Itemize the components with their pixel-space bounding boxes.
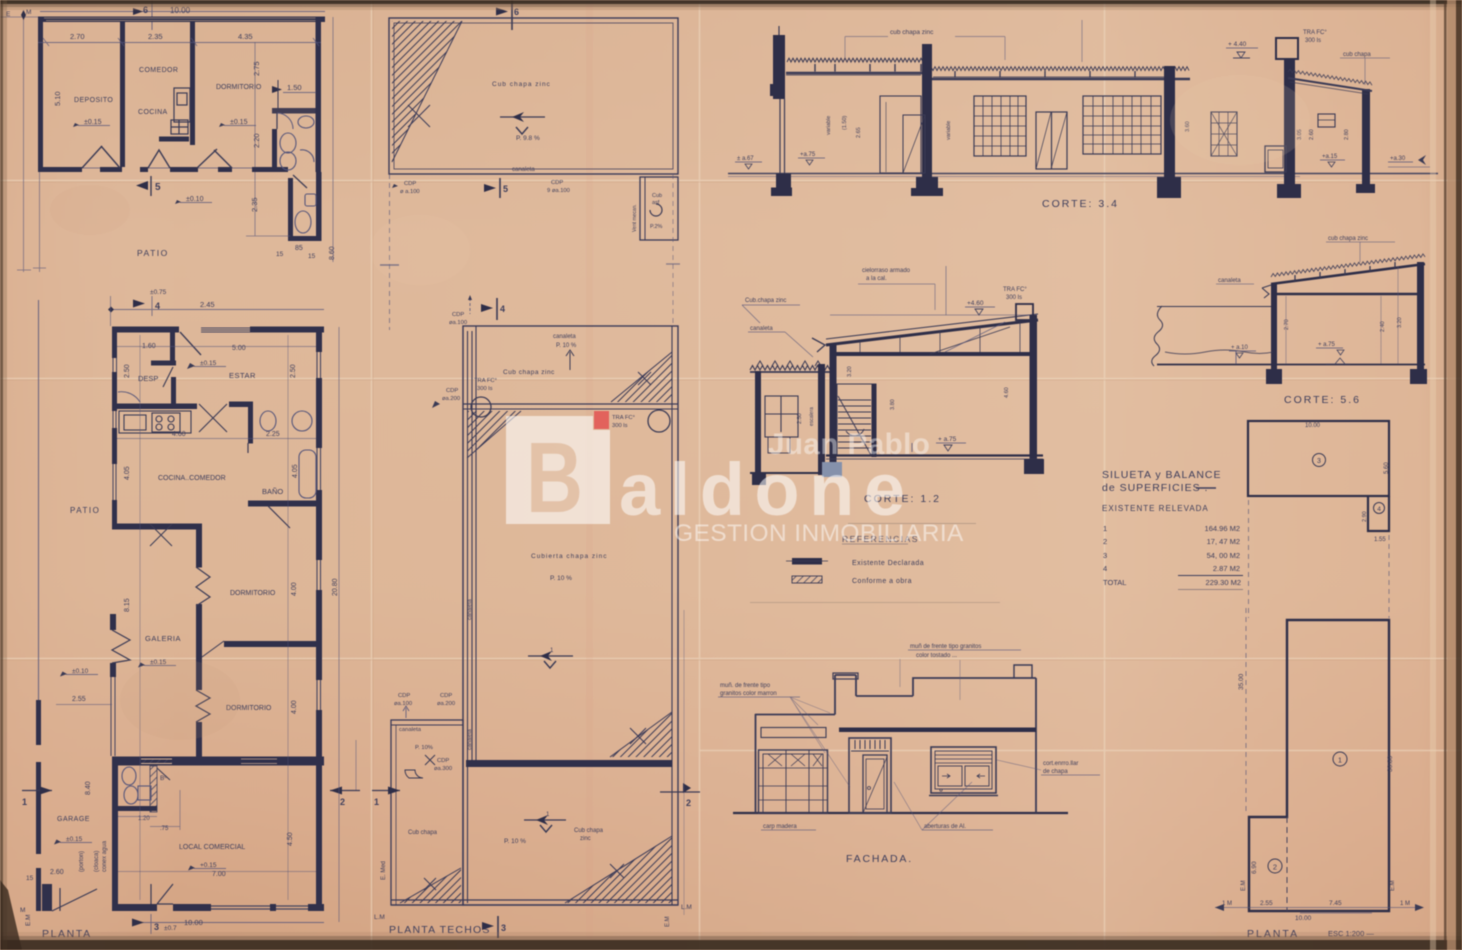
svg-text:TOTAL: TOTAL [1103, 578, 1126, 587]
svg-text:(cloaca): (cloaca) [94, 851, 100, 872]
svg-text:7.45: 7.45 [1329, 900, 1342, 907]
svg-text:TRA FC°: TRA FC° [1003, 287, 1027, 293]
svg-text:Cub: Cub [652, 193, 662, 199]
svg-text:conex agua: conex agua [102, 840, 108, 872]
svg-text:±0.7: ±0.7 [164, 925, 177, 932]
svg-text:±0.15: ±0.15 [84, 119, 102, 126]
svg-text:85: 85 [295, 245, 303, 252]
svg-text:10.00: 10.00 [1295, 915, 1312, 922]
svg-text:CDP: CDP [404, 181, 416, 187]
svg-text:2.20: 2.20 [252, 133, 261, 148]
svg-text:cub chapa zinc: cub chapa zinc [890, 29, 934, 36]
svg-text:+a.15: +a.15 [1322, 154, 1338, 160]
svg-text:2.25: 2.25 [266, 431, 280, 438]
svg-text:4.05: 4.05 [292, 464, 299, 478]
svg-text:Cub chapa: Cub chapa [408, 830, 438, 836]
svg-text:5: 5 [503, 184, 508, 194]
svg-text:+ a.75: + a.75 [938, 436, 957, 443]
svg-text:aldone: aldone [619, 448, 914, 531]
svg-text:±0.75: ±0.75 [150, 289, 167, 296]
svg-text:Cubierta chapa zinc: Cubierta chapa zinc [531, 553, 607, 560]
svg-text:E.M: E.M [1241, 880, 1247, 891]
svg-text:+ 4.40: + 4.40 [1228, 41, 1247, 48]
svg-text:1: 1 [374, 797, 379, 807]
svg-text:2.65: 2.65 [856, 127, 862, 138]
svg-text:cub chapa zinc: cub chapa zinc [1328, 236, 1368, 242]
svg-text:L.M: L.M [374, 914, 385, 921]
svg-text:P. 10 %: P. 10 % [504, 838, 526, 845]
svg-text:granitos color marron: granitos color marron [720, 691, 777, 697]
svg-text:9 øa.100: 9 øa.100 [547, 188, 570, 194]
svg-text:cub chapa: cub chapa [1343, 52, 1371, 58]
svg-text:17, 47 M2: 17, 47 M2 [1207, 537, 1240, 546]
svg-text:P.2%: P.2% [650, 224, 663, 230]
svg-text:M: M [20, 907, 25, 914]
svg-text:5.10: 5.10 [53, 91, 62, 106]
svg-text:Cub chapa: Cub chapa [574, 828, 604, 834]
svg-text:4.05: 4.05 [124, 466, 131, 480]
svg-text:+4.60: +4.60 [967, 300, 984, 307]
svg-text:P. 9.8 %: P. 9.8 % [516, 135, 540, 142]
svg-text:2.75: 2.75 [252, 61, 261, 76]
svg-text:+ a.75: + a.75 [1318, 342, 1336, 348]
svg-text:2.70: 2.70 [1284, 319, 1290, 330]
svg-text:30.80: 30.80 [1387, 755, 1394, 772]
svg-text:aberturas de Al.: aberturas de Al. [924, 824, 966, 830]
svg-text:Vent mecan.: Vent mecan. [632, 204, 638, 232]
svg-text:300 ls: 300 ls [612, 423, 628, 429]
svg-text:E.M: E.M [25, 914, 32, 926]
svg-text:a la cal.: a la cal. [866, 276, 887, 282]
svg-text:2: 2 [686, 798, 691, 808]
svg-text:Cub.chapa zinc: Cub.chapa zinc [745, 298, 786, 304]
svg-text:GARAGE: GARAGE [57, 816, 90, 823]
svg-text:Conforme a obra: Conforme a obra [852, 578, 912, 585]
svg-text:± a.67: ± a.67 [737, 156, 754, 162]
svg-text:GESTION INMOBILIARIA: GESTION INMOBILIARIA [674, 520, 964, 547]
svg-text:1: 1 [22, 797, 27, 807]
svg-text:color tostado ...: color tostado ... [916, 653, 957, 659]
svg-text:L.M: L.M [681, 904, 692, 911]
svg-text:300 ls: 300 ls [1305, 38, 1321, 44]
svg-text:canaleta: canaleta [399, 727, 422, 733]
svg-text:164.96 M2: 164.96 M2 [1205, 524, 1240, 533]
svg-text:escalera: escalera [809, 407, 815, 426]
svg-text:5.60: 5.60 [1384, 462, 1390, 474]
svg-text:54, 00 M2: 54, 00 M2 [1207, 551, 1240, 560]
svg-text:canaleta: canaleta [512, 167, 535, 173]
svg-text:2: 2 [1273, 863, 1277, 872]
svg-text:øa.100: øa.100 [449, 320, 467, 326]
svg-text:CDP: CDP [452, 312, 464, 318]
svg-text:CDP: CDP [398, 693, 410, 699]
svg-text:2.55: 2.55 [1260, 900, 1273, 907]
svg-text:EXISTENTE RELEVADA: EXISTENTE RELEVADA [1102, 504, 1209, 513]
svg-text:±0.15: ±0.15 [200, 360, 217, 367]
svg-text:DEPOSITO: DEPOSITO [74, 97, 113, 104]
svg-text:3: 3 [1317, 458, 1321, 465]
svg-text:SILUETA y BALANCE: SILUETA y BALANCE [1102, 469, 1222, 481]
svg-text:10.00: 10.00 [1305, 423, 1321, 429]
svg-text:4: 4 [500, 304, 505, 314]
svg-text:+a.75: +a.75 [800, 152, 816, 158]
svg-text:øa.200: øa.200 [442, 396, 460, 402]
svg-text:2.50: 2.50 [797, 413, 803, 424]
svg-text:canaleta: canaleta [750, 326, 773, 332]
svg-text:cielorraso armado: cielorraso armado [862, 268, 911, 274]
svg-text:2: 2 [340, 797, 345, 807]
svg-text:15: 15 [26, 875, 34, 882]
svg-text:2.45: 2.45 [200, 300, 215, 309]
svg-text:canaleta: canaleta [467, 598, 473, 620]
svg-text:GALERIA: GALERIA [145, 634, 181, 643]
svg-text:CORTE: 5.6: CORTE: 5.6 [1284, 394, 1361, 406]
svg-text:2.50: 2.50 [290, 364, 297, 378]
svg-text:1: 1 [1338, 756, 1342, 765]
svg-text:5: 5 [155, 182, 161, 193]
svg-text:øa.200: øa.200 [437, 701, 455, 707]
svg-text:1.55: 1.55 [1374, 537, 1386, 543]
svg-text:10.00: 10.00 [184, 918, 203, 927]
svg-text:2.60: 2.60 [1309, 129, 1315, 140]
svg-text:1.50: 1.50 [287, 83, 302, 92]
svg-text:±0.10: ±0.10 [186, 196, 204, 203]
svg-text:8.15: 8.15 [124, 598, 131, 612]
svg-text:8.60: 8.60 [329, 246, 336, 260]
svg-text:P. 10%: P. 10% [415, 745, 433, 751]
svg-text:+0.15: +0.15 [200, 862, 217, 869]
svg-text:.75: .75 [160, 826, 169, 832]
svg-text:cort.enrro.llar: cort.enrro.llar [1043, 761, 1078, 767]
svg-text:TRA FC°: TRA FC° [474, 378, 497, 384]
svg-text:TRA FC°: TRA FC° [612, 415, 635, 421]
svg-text:4.60: 4.60 [172, 431, 186, 438]
svg-text:2: 2 [1103, 537, 1107, 546]
svg-text:4: 4 [1377, 506, 1381, 513]
svg-text:15: 15 [308, 253, 316, 260]
svg-text:CDP: CDP [437, 758, 449, 764]
svg-text:300 ls: 300 ls [1006, 295, 1022, 301]
svg-text:4.60: 4.60 [1004, 387, 1010, 398]
svg-text:2.50: 2.50 [124, 364, 131, 378]
svg-text:variable: variable [946, 121, 952, 140]
svg-text:3: 3 [501, 923, 506, 933]
svg-text:BAÑO: BAÑO [262, 487, 283, 496]
svg-text:2.70: 2.70 [70, 32, 85, 41]
svg-text:M: M [26, 9, 31, 16]
svg-text:PATIO: PATIO [137, 248, 169, 258]
svg-text:Cub chapa zinc: Cub chapa zinc [492, 81, 551, 88]
svg-text:6.90: 6.90 [1251, 861, 1258, 874]
svg-text:15: 15 [276, 251, 284, 258]
svg-text:1: 1 [1103, 524, 1107, 533]
svg-text:+a.30: +a.30 [1390, 156, 1406, 162]
svg-text:(1.50): (1.50) [842, 115, 848, 130]
svg-text:P. 10 %: P. 10 % [550, 575, 572, 582]
svg-text:COCINA..COMEDOR: COCINA..COMEDOR [158, 475, 226, 482]
svg-text:PATIO: PATIO [70, 506, 100, 515]
svg-text:4: 4 [1103, 564, 1107, 573]
svg-text:øa.300: øa.300 [434, 766, 452, 772]
svg-text:229.30 M2: 229.30 M2 [1206, 578, 1241, 587]
svg-text:±0.10: ±0.10 [72, 668, 89, 675]
svg-text:2.60: 2.60 [50, 869, 64, 876]
svg-text:zinc: zinc [580, 836, 591, 842]
svg-text:+ a.10: + a.10 [1231, 345, 1249, 351]
svg-text:canaleta: canaleta [553, 334, 576, 340]
svg-text:4.00: 4.00 [291, 700, 298, 714]
svg-text:canaleta: canaleta [467, 728, 473, 750]
svg-text:carp madera: carp madera [763, 824, 797, 830]
svg-text:LOCAL COMERCIAL: LOCAL COMERCIAL [179, 844, 245, 851]
svg-text:E.M: E.M [1390, 880, 1396, 891]
svg-text:ø a.100: ø a.100 [400, 189, 420, 195]
svg-text:5.00: 5.00 [232, 345, 246, 352]
svg-text:2.35: 2.35 [250, 197, 259, 212]
svg-text:øa.100: øa.100 [394, 701, 412, 707]
svg-text:variable: variable [826, 116, 832, 135]
svg-text:2.80: 2.80 [1344, 129, 1350, 140]
svg-text:CDP: CDP [551, 180, 563, 186]
svg-text:3: 3 [154, 922, 159, 932]
svg-text:E.M: E.M [665, 916, 671, 927]
svg-text:CDP: CDP [440, 693, 452, 699]
svg-text:2.35: 2.35 [148, 32, 163, 41]
svg-text:TRA FC°: TRA FC° [1303, 30, 1327, 36]
svg-text:300 ls: 300 ls [477, 386, 493, 392]
svg-text:canaleta: canaleta [1218, 278, 1241, 284]
svg-text:1 M: 1 M [1222, 901, 1232, 907]
svg-text:Existente Declarada: Existente Declarada [852, 560, 924, 567]
svg-text:muñ de frente tipo granitos: muñ de frente tipo granitos [910, 644, 981, 650]
svg-text:de SUPERFICIES .: de SUPERFICIES . [1102, 482, 1208, 494]
svg-text:ESTAR: ESTAR [229, 371, 256, 380]
svg-text:20.80: 20.80 [332, 578, 339, 596]
svg-text:2.90: 2.90 [1362, 511, 1368, 522]
svg-text:CORTE: 3.4: CORTE: 3.4 [1042, 198, 1119, 210]
svg-text:FACHADA.: FACHADA. [846, 853, 913, 865]
svg-text:DESP: DESP [138, 374, 158, 383]
svg-text:±0.15: ±0.15 [66, 836, 83, 843]
svg-text:3: 3 [1103, 551, 1107, 560]
svg-text:CDP: CDP [446, 388, 458, 394]
svg-text:2.87 M2: 2.87 M2 [1213, 564, 1240, 573]
svg-text:P. 10 %: P. 10 % [556, 343, 577, 349]
svg-text:7.00: 7.00 [212, 871, 226, 878]
svg-text:COCINA: COCINA [138, 109, 168, 116]
svg-text:1 M: 1 M [1400, 901, 1410, 907]
svg-text:4.35: 4.35 [238, 32, 253, 41]
svg-text:35.00: 35.00 [1238, 673, 1245, 690]
svg-text:4.00: 4.00 [291, 582, 298, 596]
svg-text:muñ. de frente tipo: muñ. de frente tipo [720, 683, 771, 689]
svg-text:E. Med: E. Med [381, 861, 387, 880]
svg-text:4: 4 [155, 301, 160, 311]
svg-text:COMEDOR: COMEDOR [139, 67, 178, 74]
svg-text:(porton): (porton) [79, 851, 85, 872]
svg-text:2.55: 2.55 [72, 696, 86, 703]
svg-text:8.40: 8.40 [85, 781, 92, 795]
svg-text:±0.15: ±0.15 [230, 119, 248, 126]
svg-text:3.80: 3.80 [890, 399, 896, 410]
svg-text:DORMITORIO: DORMITORIO [230, 590, 276, 597]
svg-text:Cub chapa zinc: Cub chapa zinc [503, 369, 555, 376]
svg-text:de chapa: de chapa [1043, 769, 1068, 775]
svg-text:3.20: 3.20 [847, 366, 853, 377]
